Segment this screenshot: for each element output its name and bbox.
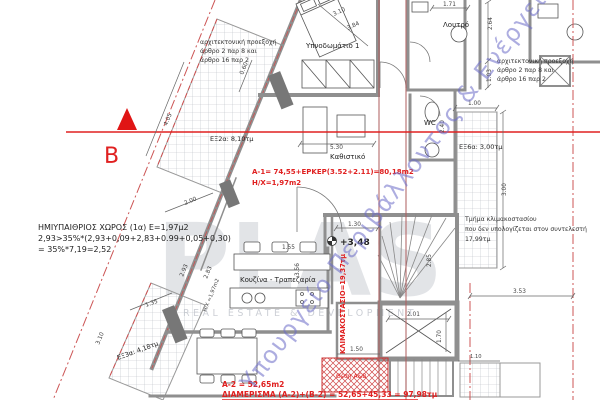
dim-150: 1.50 xyxy=(350,347,363,353)
section-label-b: Β xyxy=(104,144,119,169)
arch-projection-note-left-3: άρθρο 16 παρ 2 xyxy=(200,56,249,64)
arch-projection-note-left: αρχιτεκτονική προεξοχή xyxy=(200,38,277,46)
dim-405: 4.05 xyxy=(163,112,174,127)
arch-projection-note-right-3: άρθρο 16 παρ 2 xyxy=(497,75,546,83)
closets xyxy=(302,60,374,88)
parking-spot-label: Θέση Α&Β xyxy=(336,373,366,380)
semi-open-line3: = 35%*7,19=2,52 xyxy=(38,245,111,254)
dim-384: 3.84 xyxy=(346,21,361,32)
dim-201: 2.01 xyxy=(407,312,420,318)
dim-264: 2.64 xyxy=(488,17,494,30)
floor-plan-canvas: PLAS REAL ESTATE & DEVELOPMENT xyxy=(0,0,600,400)
sofa xyxy=(303,107,327,153)
coffee-table xyxy=(337,115,365,137)
stair-note: Τμήμα κλιμακοστασίου xyxy=(464,215,537,223)
section-arrow-b xyxy=(117,108,137,130)
dim-170: 1.70 xyxy=(437,330,443,343)
a1-hx-text: Η/Χ=1,97m2 xyxy=(252,179,301,187)
bedroom1-label: Υπνοδωμάτιο 1 xyxy=(305,42,359,50)
dim-300: 3.00 xyxy=(502,183,508,196)
arch-projection-note-left-2: άρθρο 2 παρ 8 και xyxy=(200,47,257,55)
bathroom-label: Λουτρό xyxy=(443,21,469,29)
stair-note-2: που δεν υπολογίζεται στον συντελεστή xyxy=(465,225,587,233)
semi-open-line1: ΗΜΙΥΠΑΙΘΡΙΟΣ ΧΩΡΟΣ (1α) Ε=1,97μ2 xyxy=(38,223,189,232)
dim-530: 5.30 xyxy=(330,145,343,151)
dim-353: 3.53 xyxy=(513,289,526,295)
kitchen-label: Κουζίνα - Τραπεζαρία xyxy=(240,276,316,284)
stair-note-3: 17,99τμ xyxy=(465,236,490,243)
dim-285: 2.85 xyxy=(427,254,433,267)
neighbor-tub xyxy=(567,24,583,40)
dim-110: 1.10 xyxy=(470,354,482,360)
dim-155: 1.55 xyxy=(282,245,295,251)
floor-plan-drawing: PLAS REAL ESTATE & DEVELOPMENT xyxy=(0,0,600,400)
dim-310-balcony: 3.10 xyxy=(95,331,106,346)
balcony-ex2a-label: ΕΞ2α: 8,10τμ xyxy=(210,135,253,143)
balcony-ex6a-label: ΕΞ6α: 3,00τμ xyxy=(459,143,502,151)
dim-356: 3.56 xyxy=(295,263,301,276)
living-label: Καθιστικό xyxy=(330,153,365,161)
semi-open-line2: 2,93>35%*(2,93+0,09+2,83+0.99+0,05+0,30) xyxy=(38,234,231,243)
arch-projection-note-right-2: άρθρο 2 παρ 8 και xyxy=(497,66,554,74)
dim-171: 1.71 xyxy=(443,2,456,8)
balcony-ex6a xyxy=(457,112,497,268)
balcony-bottom-right xyxy=(460,363,540,397)
